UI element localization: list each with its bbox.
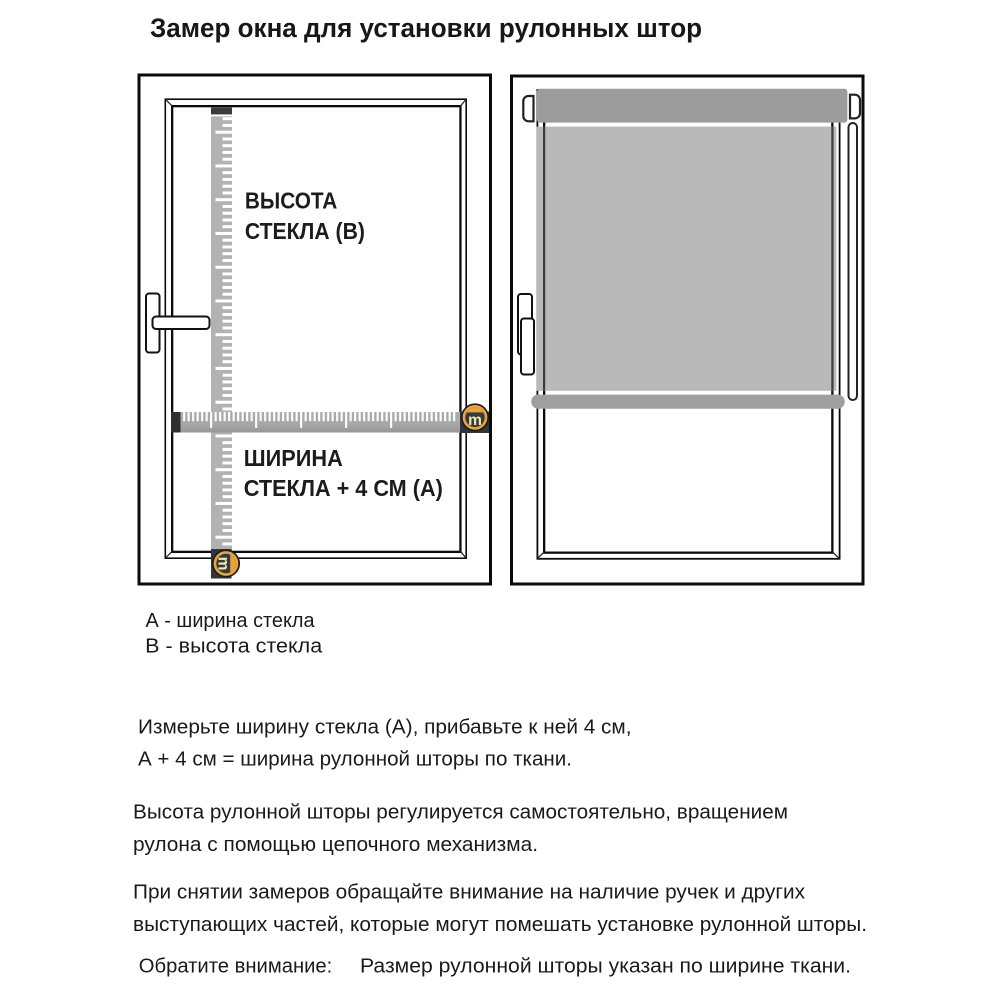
- svg-text:выступающих частей, которые мо: выступающих частей, которые могут помеша…: [133, 913, 867, 936]
- svg-text:А - ширина стекла: А - ширина стекла: [146, 610, 316, 632]
- svg-text:Замер окна для установки рулон: Замер окна для установки рулонных штор: [150, 13, 702, 43]
- svg-text:При снятии замеров обращайте в: При снятии замеров обращайте внимание на…: [133, 881, 806, 904]
- svg-text:Измерьте ширину стекла (А), пр: Измерьте ширину стекла (А), прибавьте к …: [138, 716, 632, 739]
- svg-text:Высота рулонной шторы регулиру: Высота рулонной шторы регулируется самос…: [133, 801, 788, 824]
- svg-text:рулона с помощью цепочного мех: рулона с помощью цепочного механизма.: [133, 833, 538, 856]
- svg-text:ВЫСОТА: ВЫСОТА: [245, 188, 337, 214]
- svg-text:Размер рулонной шторы указан п: Размер рулонной шторы указан по ширине т…: [360, 955, 851, 978]
- svg-text:m: m: [215, 557, 232, 571]
- svg-text:Обратите внимание:: Обратите внимание:: [139, 955, 332, 978]
- svg-text:СТЕКЛА (В): СТЕКЛА (В): [245, 218, 365, 244]
- svg-text:m: m: [468, 412, 482, 429]
- svg-text:ШИРИНА: ШИРИНА: [244, 445, 343, 471]
- svg-text:СТЕКЛА + 4 СМ (А): СТЕКЛА + 4 СМ (А): [244, 475, 443, 501]
- svg-text:А + 4 см = ширина рулонной што: А + 4 см = ширина рулонной шторы по ткан…: [138, 748, 572, 771]
- svg-text:В - высота стекла: В - высота стекла: [145, 636, 323, 658]
